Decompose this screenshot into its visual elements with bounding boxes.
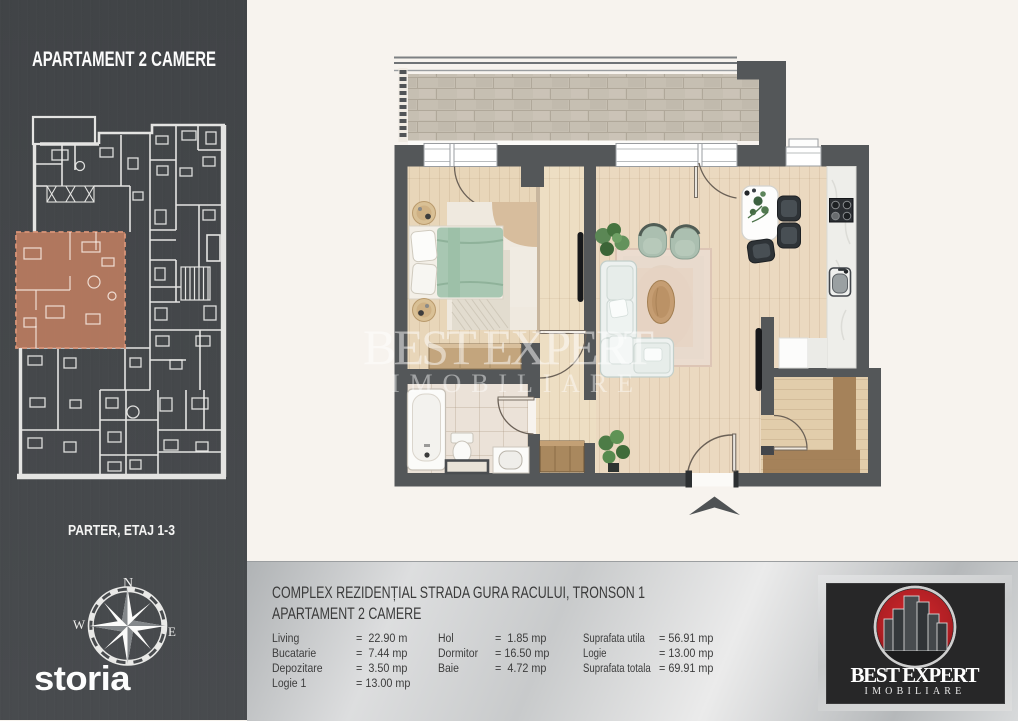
svg-text:PARTER, ETAJ 1-3: PARTER, ETAJ 1-3 bbox=[68, 523, 175, 539]
svg-text:N: N bbox=[123, 576, 133, 591]
svg-text:W: W bbox=[73, 617, 86, 632]
svg-text:APARTAMENT 2 CAMERE: APARTAMENT 2 CAMERE bbox=[32, 47, 216, 71]
svg-text:BEST EXPERT: BEST EXPERT bbox=[363, 319, 657, 375]
svg-text:IMOBILIARE: IMOBILIARE bbox=[865, 686, 966, 697]
svg-text:storia: storia bbox=[34, 660, 132, 698]
svg-text:IMOBILIARE: IMOBILIARE bbox=[391, 369, 645, 398]
svg-text:BEST EXPERT: BEST EXPERT bbox=[851, 663, 980, 687]
svg-text:E: E bbox=[168, 624, 176, 639]
